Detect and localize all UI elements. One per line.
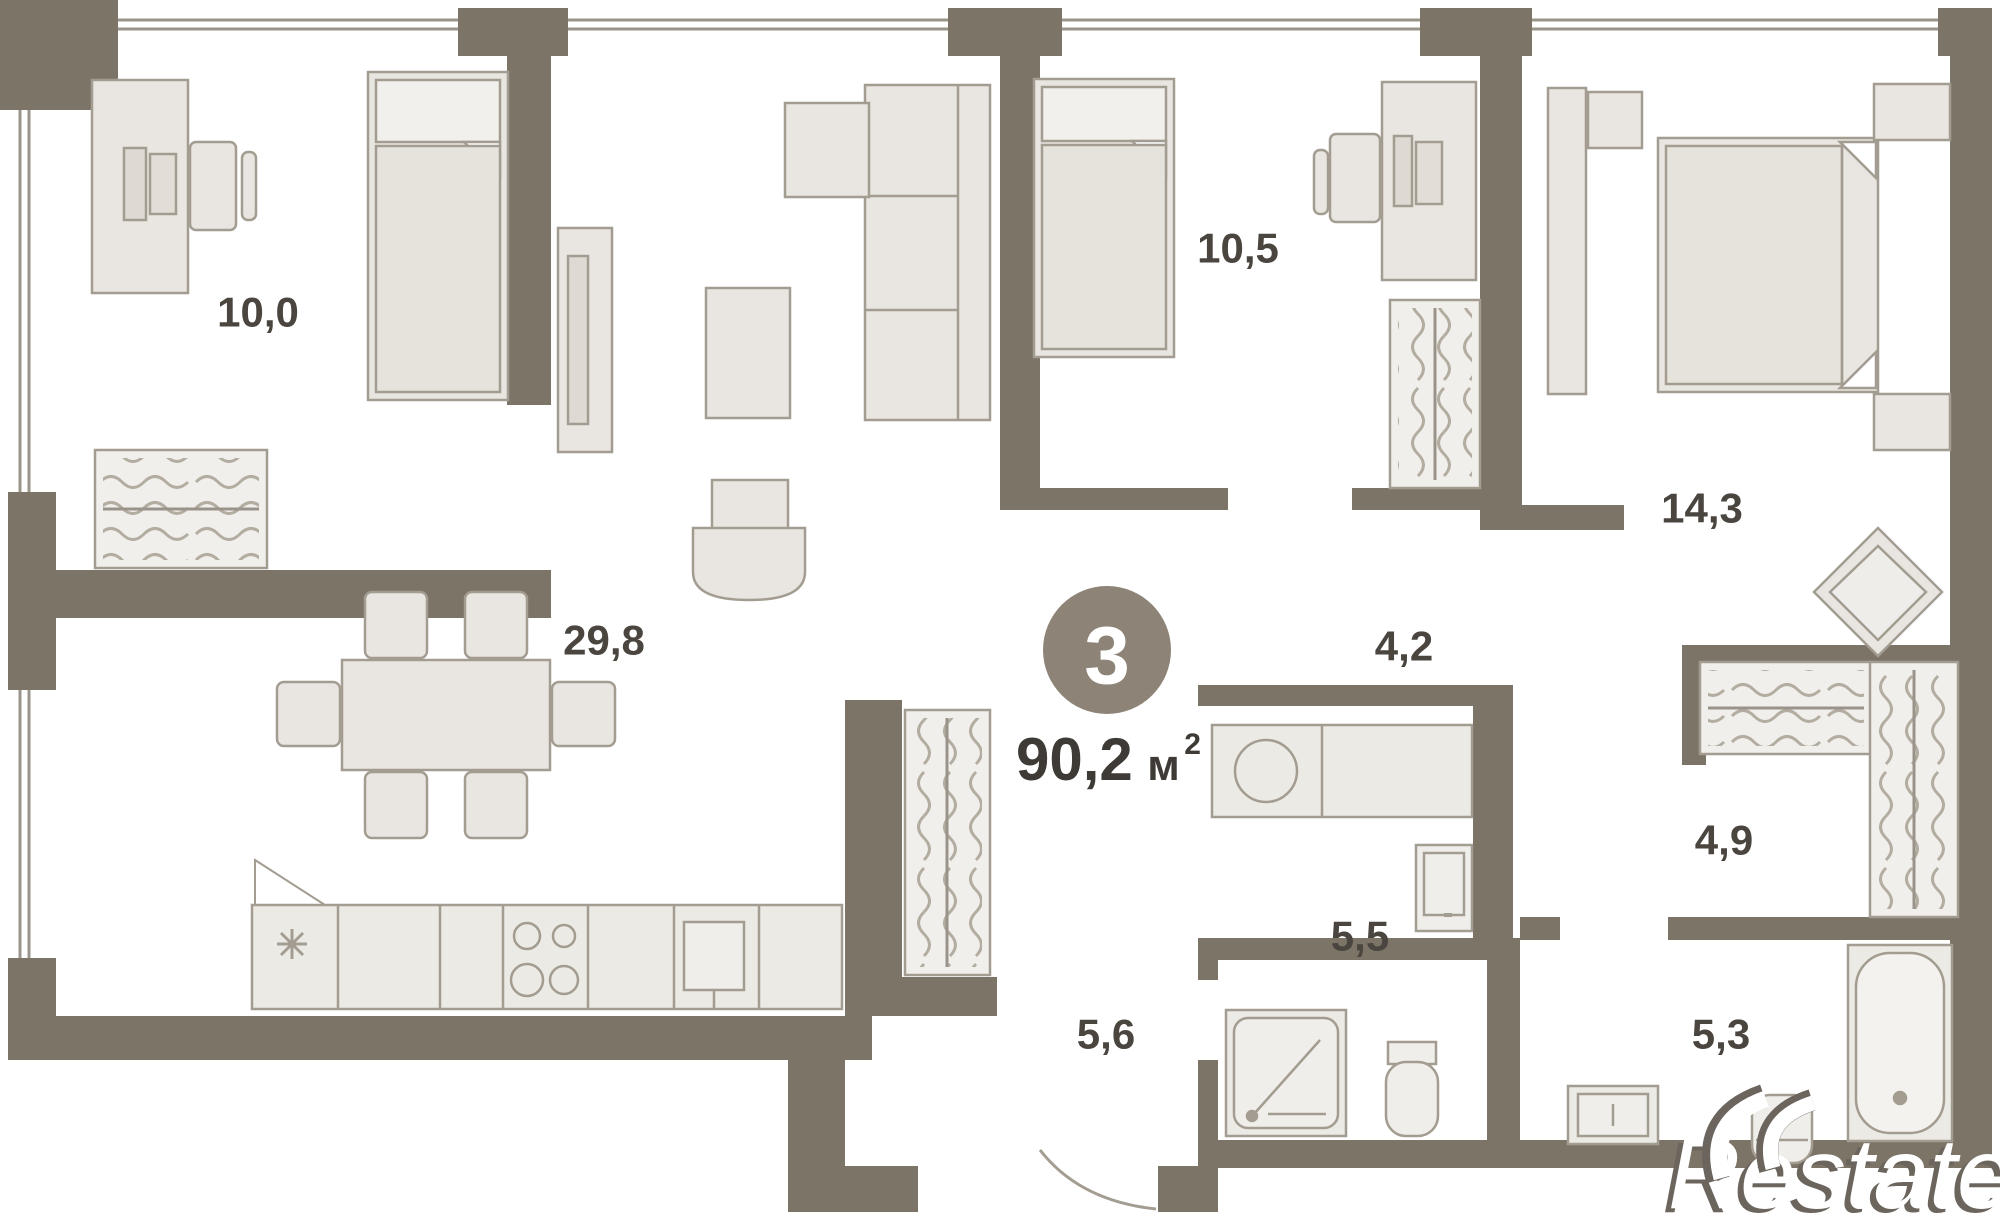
wall-shelf [1588,92,1642,148]
nightstand [1874,394,1950,450]
desk-chair [1330,134,1380,222]
label-bedroom-right: 14,3 [1661,485,1743,532]
wardrobe-corridor [905,710,990,975]
wall-corridor-left [845,700,902,1016]
label-bedroom-left: 10,0 [217,289,299,336]
label-corridor: 5,6 [1077,1011,1135,1058]
sofa [865,85,990,420]
label-closet: 4,9 [1695,817,1753,864]
wardrobe-bedroom-mid [1390,300,1480,488]
dining-chair [277,682,340,746]
sofa-chaise [785,103,869,197]
desk-chair [190,142,236,230]
wall-bed3-closet [1682,645,1958,662]
monitor-icon [1394,136,1412,206]
pillow [376,80,500,142]
unit-badge: 3 [1043,586,1171,714]
toilet [1386,1042,1438,1136]
dining-chair [365,772,427,838]
label-bathroom: 5,3 [1692,1011,1750,1058]
bathtub-drain [1894,1092,1906,1104]
wall-right [1950,8,1992,1168]
floorplan-page: 10,0 29,8 10,5 14,3 4,2 5,5 5,6 4,9 5,3 … [0,0,2000,1223]
sink-vanity [1568,1086,1658,1144]
kitchen-counter [252,905,842,1009]
label-bedroom-mid: 10,5 [1197,225,1279,272]
label-laundry: 5,5 [1331,913,1389,960]
wall-laundry-top [1198,685,1477,706]
dining-chair [465,772,527,838]
nightstand [1874,84,1950,140]
coffee-table [706,288,790,418]
armchair [693,528,805,600]
dining-chair [465,592,527,658]
monitor-icon [124,148,146,220]
fridge-snowflake-icon [277,929,307,959]
label-living: 29,8 [563,617,645,664]
kitchen-sink [684,922,744,990]
floorplan-svg: 10,0 29,8 10,5 14,3 4,2 5,5 5,6 4,9 5,3 … [0,0,2000,1223]
laundry-counter [1212,725,1472,817]
wardrobe-closet-right [1870,662,1958,917]
shelf-unit [1548,88,1586,394]
wall-bed2-bed3 [1480,45,1522,530]
wall-bed1-living [507,45,551,405]
wardrobe-closet-top [1700,662,1872,754]
wall-bath-top [1668,917,1958,940]
dining-chair [365,592,427,658]
badge-number: 3 [1084,611,1130,702]
pillow [1042,87,1166,141]
wall-shower-bath [1487,938,1520,1140]
dining-table [342,660,550,770]
dining-chair [552,682,615,746]
wardrobe-bedroom-left [95,450,267,568]
tv-icon [568,256,588,424]
label-hallway: 4,2 [1375,623,1433,670]
wall-bottom-kitchen [8,1016,872,1060]
